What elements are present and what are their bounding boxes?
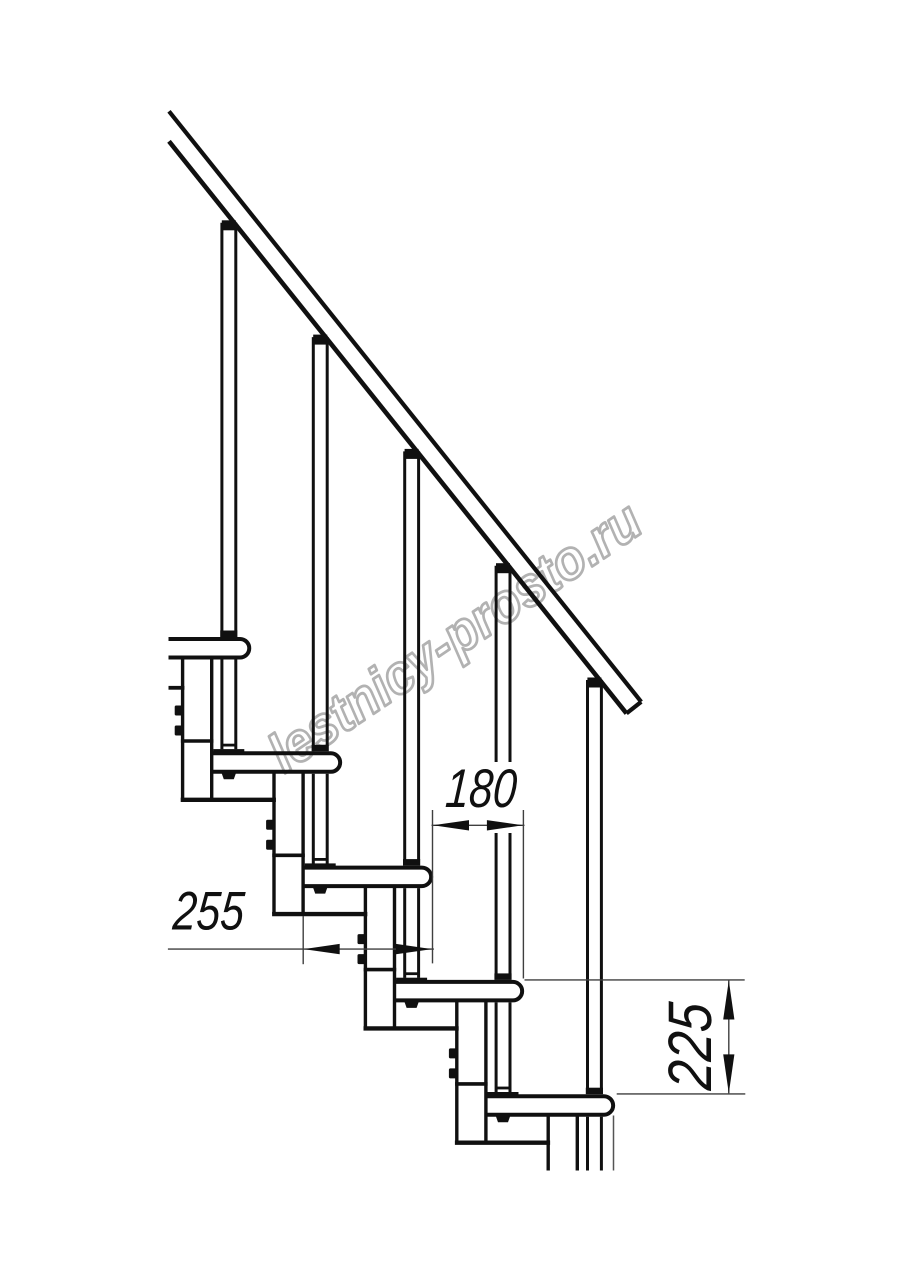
svg-text:180: 180 — [444, 759, 519, 819]
svg-text:225: 225 — [656, 1000, 725, 1093]
svg-text:255: 255 — [170, 882, 247, 942]
